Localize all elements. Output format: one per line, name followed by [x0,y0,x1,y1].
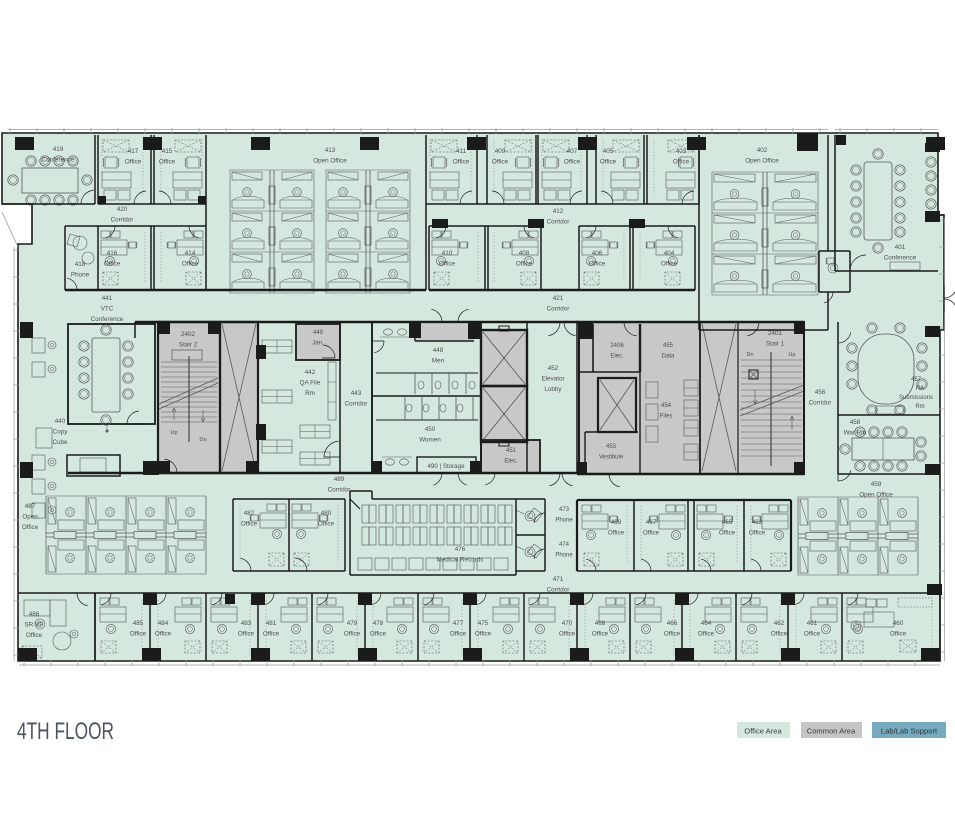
svg-text:487: 487 [25,503,36,510]
svg-text:401: 401 [895,244,906,251]
svg-text:450: 450 [425,426,436,433]
svg-text:Up: Up [789,352,796,358]
svg-text:Data: Data [662,354,675,360]
svg-text:418: 418 [75,261,86,268]
svg-text:483: 483 [241,620,252,627]
svg-text:Open Office: Open Office [313,158,347,165]
svg-text:Office: Office [890,631,907,638]
svg-text:VTC: VTC [101,306,114,313]
svg-text:Office: Office [22,524,39,531]
svg-text:Women: Women [419,437,441,444]
svg-text:417: 417 [128,148,139,155]
svg-text:Office: Office [516,261,533,268]
svg-text:407: 407 [567,148,578,155]
svg-text:403: 403 [676,148,687,155]
svg-text:467: 467 [646,519,657,526]
svg-text:460: 460 [893,620,904,627]
svg-text:Office: Office [771,631,788,638]
svg-text:415: 415 [162,148,173,155]
svg-text:414: 414 [185,250,196,257]
svg-text:465: 465 [722,519,733,526]
svg-text:466: 466 [667,620,678,627]
svg-text:484: 484 [158,620,169,627]
svg-text:473: 473 [559,507,570,513]
svg-text:452: 452 [548,365,559,372]
svg-text:406: 406 [592,250,603,257]
svg-text:470: 470 [562,620,573,627]
svg-text:Stair 1: Stair 1 [766,341,785,348]
svg-text:412: 412 [553,208,564,215]
svg-text:Stair 2: Stair 2 [179,342,198,349]
svg-text:Men: Men [432,358,445,365]
svg-text:457: 457 [911,377,922,383]
svg-text:Office: Office [263,631,280,638]
svg-text:Office: Office [592,631,609,638]
svg-text:Office: Office [664,631,681,638]
svg-text:486: 486 [29,611,40,618]
svg-text:Office: Office [344,631,361,638]
svg-text:Office: Office [453,159,470,166]
svg-text:2406: 2406 [610,343,624,349]
svg-text:459: 459 [871,481,882,488]
svg-text:453: 453 [606,444,617,450]
svg-text:455: 455 [663,343,674,349]
svg-text:454: 454 [661,403,672,409]
svg-text:Rm: Rm [915,404,924,410]
svg-text:Up: Up [170,430,177,436]
svg-text:Office: Office [159,159,176,166]
svg-text:456: 456 [815,389,826,396]
svg-text:480: 480 [321,510,332,517]
svg-text:Phone: Phone [555,518,573,524]
svg-text:War Rm: War Rm [844,430,867,437]
svg-text:489: 489 [334,476,345,483]
svg-text:469: 469 [611,519,622,526]
svg-text:463: 463 [752,519,763,526]
svg-text:Rm: Rm [305,390,315,397]
svg-text:Files: Files [660,414,673,420]
svg-text:408: 408 [519,250,530,257]
svg-text:420: 420 [117,206,128,213]
svg-text:Corridor: Corridor [547,219,570,226]
svg-text:Dn: Dn [747,352,754,358]
svg-text:Office: Office [673,159,690,166]
svg-text:Submissions: Submissions [899,395,933,401]
svg-text:Corridor: Corridor [328,487,351,494]
svg-text:441: 441 [102,295,113,302]
svg-text:449: 449 [313,330,324,336]
svg-text:451: 451 [506,448,517,454]
svg-text:4TH FLOOR: 4TH FLOOR [17,718,114,745]
svg-text:Office: Office [155,631,172,638]
svg-text:448: 448 [433,347,444,354]
svg-text:Office: Office [589,261,606,268]
svg-text:Office: Office [559,631,576,638]
svg-text:482: 482 [244,510,255,517]
svg-text:Office Area: Office Area [744,727,782,736]
svg-text:475: 475 [478,620,489,627]
svg-text:405: 405 [603,148,614,155]
svg-text:Office: Office [182,261,199,268]
svg-text:SR VP: SR VP [25,622,44,629]
svg-text:443: 443 [351,390,362,397]
svg-text:421: 421 [553,295,564,302]
svg-text:Office: Office [698,631,715,638]
svg-text:458: 458 [850,419,861,426]
svg-text:Conference: Conference [42,157,75,164]
svg-text:462: 462 [774,620,785,627]
svg-text:Common Area: Common Area [807,727,856,736]
svg-text:QA File: QA File [300,380,321,387]
svg-text:471: 471 [553,576,564,583]
svg-text:Office: Office [104,261,121,268]
svg-text:440: 440 [55,418,66,425]
svg-text:Office: Office [130,631,147,638]
svg-text:477: 477 [453,620,464,627]
svg-text:Vestibule: Vestibule [599,455,624,461]
svg-text:413: 413 [325,147,336,154]
svg-text:479: 479 [347,620,358,627]
svg-text:Office: Office [492,159,509,166]
svg-text:Phone: Phone [71,272,90,279]
svg-text:Office: Office [238,631,255,638]
svg-text:Office: Office [439,261,456,268]
svg-text:Corridor: Corridor [809,400,832,407]
svg-text:416: 416 [107,250,118,257]
svg-text:Open: Open [22,514,38,521]
svg-text:Phone: Phone [555,553,573,559]
svg-text:Lobby: Lobby [544,386,562,393]
svg-text:Office: Office [26,632,43,639]
svg-text:Office: Office [370,631,387,638]
svg-text:Office: Office [643,530,660,537]
svg-text:468: 468 [595,620,606,627]
svg-text:2401: 2401 [768,330,783,337]
svg-text:481: 481 [266,620,277,627]
svg-text:474: 474 [559,542,570,548]
svg-text:404: 404 [664,250,675,257]
svg-text:419: 419 [53,146,64,153]
svg-text:464: 464 [701,620,712,627]
svg-text:Open Office: Open Office [859,492,893,499]
svg-text:Office: Office [719,530,736,537]
svg-text:Office: Office [125,159,142,166]
svg-text:Corridor: Corridor [547,306,570,313]
svg-text:Open Office: Open Office [745,158,779,165]
svg-text:Elec.: Elec. [610,354,624,360]
svg-text:442: 442 [305,369,316,376]
svg-text:409: 409 [495,148,506,155]
svg-text:Lab/Lab Support: Lab/Lab Support [881,727,938,736]
svg-text:Dn: Dn [199,437,206,443]
svg-text:Office: Office [600,159,617,166]
svg-text:Elevator: Elevator [541,376,564,383]
svg-text:402: 402 [757,147,768,154]
svg-text:RA: RA [916,386,924,392]
svg-text:Corridor: Corridor [345,401,368,408]
svg-text:Copy: Copy [53,429,69,436]
svg-text:411: 411 [456,148,467,155]
svg-text:Office: Office [804,631,821,638]
svg-text:Office: Office [749,530,766,537]
svg-text:461: 461 [807,620,818,627]
svg-text:Medical Records: Medical Records [437,557,484,564]
svg-text:485: 485 [133,620,144,627]
svg-text:Office: Office [608,530,625,537]
svg-text:2402: 2402 [181,331,196,338]
svg-text:Conference: Conference [91,316,124,323]
svg-text:Elec.: Elec. [504,459,518,465]
svg-text:Office: Office [450,631,467,638]
svg-text:478: 478 [373,620,384,627]
svg-text:Office: Office [661,261,678,268]
svg-text:476: 476 [455,546,466,553]
svg-text:490 | Storage: 490 | Storage [427,463,465,470]
svg-text:Office: Office [318,521,335,528]
svg-text:Corridor: Corridor [111,217,134,224]
svg-text:Conference: Conference [884,255,917,262]
svg-text:Office: Office [241,521,258,528]
svg-text:Office: Office [564,159,581,166]
svg-text:Jan.: Jan. [312,341,324,347]
svg-text:Office: Office [475,631,492,638]
svg-text:Cube: Cube [52,439,68,446]
svg-text:410: 410 [442,250,453,257]
